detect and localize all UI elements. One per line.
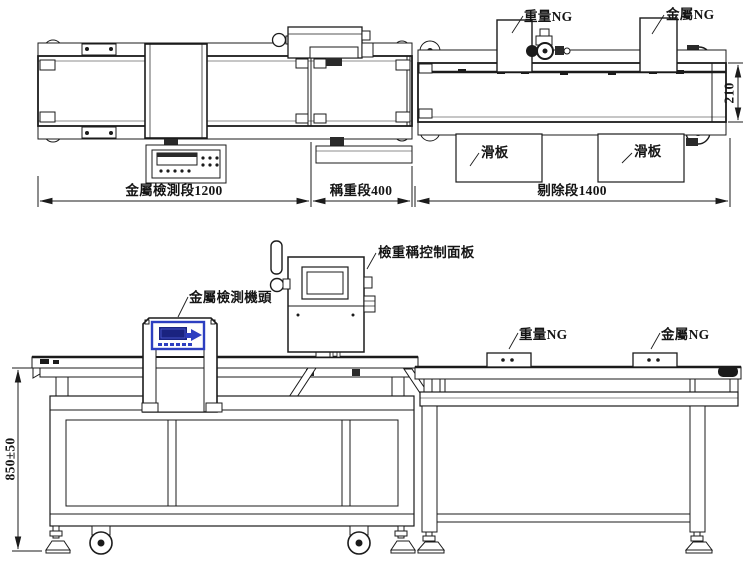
leader-line [509, 333, 518, 349]
ng-sample-blocks [487, 333, 677, 367]
leader-line [178, 297, 188, 317]
weight-ng-flag-plan [497, 16, 532, 72]
metal-ng-flag-plan [640, 15, 677, 72]
panel-handle [271, 241, 282, 274]
dim-table-height: 850±50 [3, 438, 17, 481]
metal-detector-plan [145, 44, 207, 138]
dim-weighing-section: 稱重段400 [330, 184, 393, 198]
detector-display [152, 322, 204, 349]
side-metal-ng-label: 金屬NG [661, 328, 709, 342]
metal-detector-side [142, 318, 222, 412]
side-weight-ng-label: 重量NG [519, 328, 567, 342]
dim-rejection-section: 剔除段1400 [537, 184, 607, 198]
checkweigher-panel-label: 檢重稱控制面板 [378, 246, 475, 260]
engineering-drawing: 重量NG 金屬NG 滑板 滑板 金屬檢測段1200 稱重段400 剔除段1400… [0, 0, 750, 565]
side-view [12, 241, 741, 554]
left-casters-feet [46, 526, 415, 554]
control-keypad-plan [146, 139, 226, 183]
plan-metal-ng-label: 金屬NG [666, 8, 714, 22]
plan-weight-ng-label: 重量NG [524, 10, 572, 24]
weigh-platform-plan [316, 137, 412, 163]
technical-drawing-linework [0, 0, 750, 565]
dim-belt-width: 210 [722, 82, 736, 103]
plan-view [38, 15, 743, 207]
side-right-conveyor [415, 333, 741, 553]
plan-reject-conveyor [418, 41, 726, 146]
dim-metal-detection-section: 金屬檢測段1200 [125, 184, 222, 198]
side-left-conveyor [32, 344, 432, 399]
metal-detector-head-label: 金屬檢測機頭 [189, 291, 272, 305]
slide-plate-label-1: 滑板 [481, 146, 509, 160]
slide-plate-label-2: 滑板 [634, 145, 662, 159]
checkweigher-panel-side [271, 241, 377, 357]
leader-line [367, 253, 376, 269]
left-cabinet [50, 396, 414, 526]
leader-line [651, 333, 660, 349]
